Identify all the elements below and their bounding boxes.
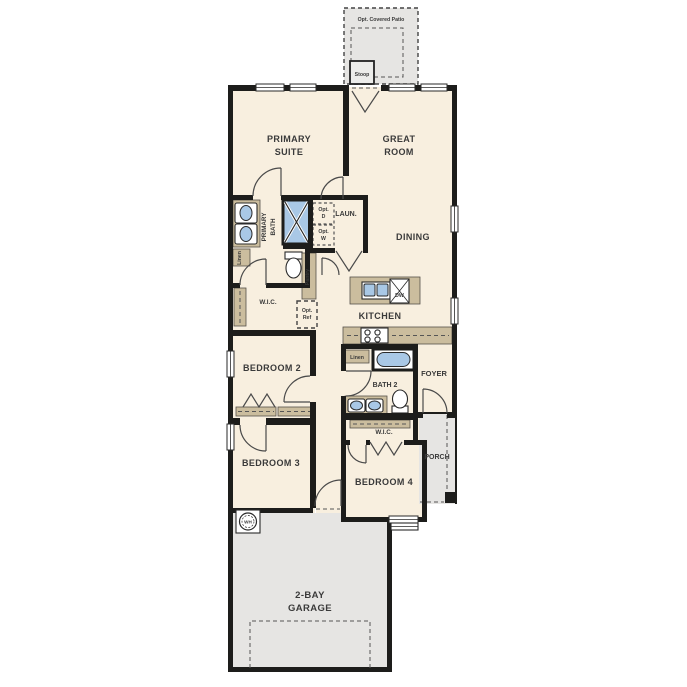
bath2-toilet [392, 390, 408, 413]
water-heater-label: WH [244, 520, 252, 525]
opt-ref-label: Opt. [302, 308, 313, 314]
kitchen-label: KITCHEN [359, 311, 402, 321]
porch-post [445, 492, 456, 503]
bath2-label: BATH 2 [373, 382, 398, 389]
patio-label: Opt. Covered Patio [358, 17, 405, 23]
primary-bath-label-2: BATH [270, 218, 277, 235]
shower [283, 200, 310, 244]
bedroom2-label: BEDROOM 2 [243, 363, 301, 373]
window [389, 516, 418, 523]
water-heater: WH [236, 510, 260, 533]
opt-dryer-label: Opt. [318, 207, 329, 213]
bedroom3-label: BEDROOM 3 [242, 458, 300, 468]
wic-primary-label: W.I.C. [259, 299, 276, 306]
window [290, 84, 316, 91]
garage-label: 2-BAY [295, 590, 325, 601]
floor-plan-canvas: WH Opt. Covered Patio Stoop PRIMARY SUIT… [0, 0, 687, 687]
laundry-label: LAUN. [335, 211, 356, 218]
pantry-label: Pantry [305, 269, 311, 285]
bath2-vanity [345, 396, 387, 415]
bathtub [373, 349, 414, 370]
bedroom2-closet-rod [236, 407, 276, 416]
opt-washer-label: Opt. [318, 229, 329, 235]
garage-step [391, 523, 418, 530]
wic-bedroom4-label: W.I.C. [375, 429, 392, 436]
wic-primary-rod [234, 288, 246, 326]
linen-primary-label: Linen [237, 251, 243, 265]
primary-vanity [233, 200, 260, 247]
window [227, 351, 234, 377]
kitchen-island [350, 277, 420, 304]
dishwasher [390, 279, 409, 303]
floor-plan: WH Opt. Covered Patio Stoop PRIMARY SUIT… [0, 0, 687, 687]
primary-bath-label: PRIMARY [261, 212, 268, 242]
linen-hall-label: Linen [350, 355, 364, 361]
wic-bedroom4-rod [350, 420, 410, 428]
opt-ref-label-2: Ref [303, 315, 312, 321]
primary-suite-label-2: SUITE [275, 147, 304, 157]
bedroom4-label: BEDROOM 4 [355, 477, 413, 487]
garage-label-2: GARAGE [288, 603, 332, 614]
great-room-label-2: ROOM [384, 147, 414, 157]
hall-closet-rod [278, 407, 314, 416]
dishwasher-label: DW [395, 293, 404, 299]
great-room-label: GREAT [383, 134, 416, 144]
range [361, 328, 388, 343]
primary-toilet [285, 252, 302, 278]
window [421, 84, 447, 91]
primary-suite-label: PRIMARY [267, 134, 311, 144]
porch-label: PORCH [424, 454, 449, 461]
window [389, 84, 415, 91]
kitchen-counter [343, 327, 452, 344]
dining-label: DINING [396, 232, 430, 242]
stoop-label: Stoop [355, 72, 370, 78]
window [451, 298, 458, 324]
window [451, 206, 458, 232]
foyer-label: FOYER [421, 369, 447, 378]
opt-dryer-label-2: D [322, 214, 326, 220]
window [256, 84, 284, 91]
opt-washer-label-2: W [321, 236, 326, 242]
window [227, 424, 234, 450]
